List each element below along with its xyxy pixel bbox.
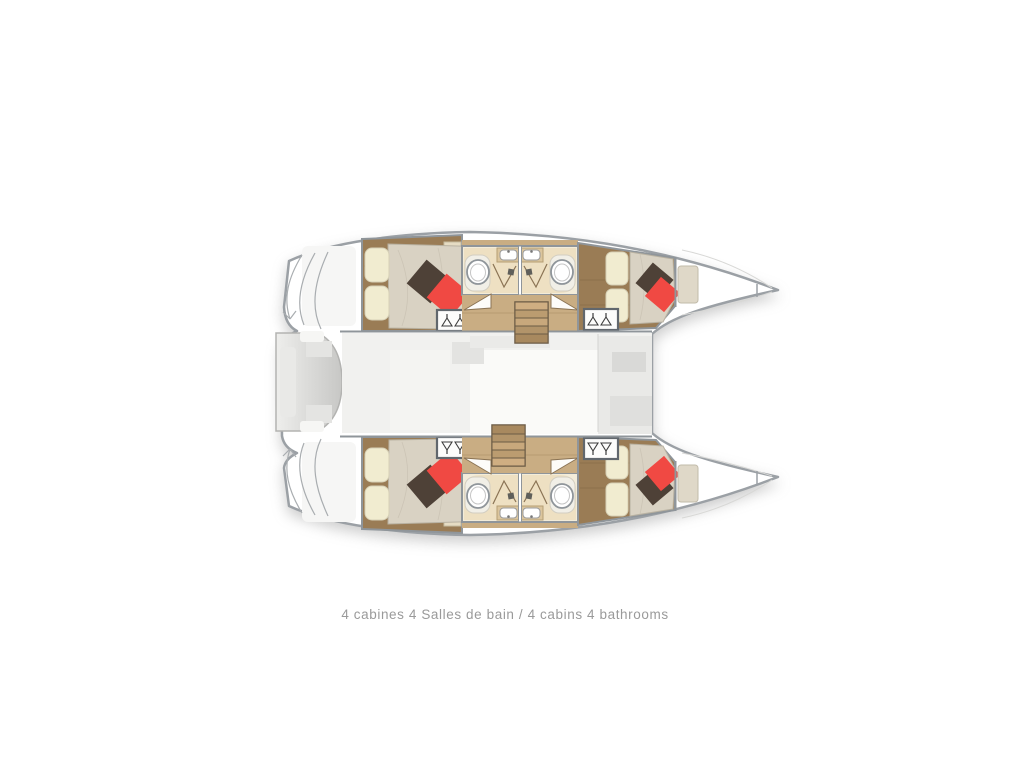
port-stairs <box>515 302 548 343</box>
cockpit-cushion <box>300 331 324 342</box>
catamaran-floor-plan-page: 4 cabines 4 Salles de bain / 4 cabins 4 … <box>0 0 1024 768</box>
cockpit-cushion <box>300 421 324 432</box>
saloon-seat <box>610 396 652 426</box>
caption-text: 4 cabines 4 Salles de bain / 4 cabins 4 … <box>341 607 668 622</box>
cockpit-area <box>276 331 342 432</box>
cockpit-table <box>306 405 332 423</box>
saloon-sofa <box>390 350 450 430</box>
catamaran-deck-plan <box>0 0 1024 768</box>
cockpit-table <box>306 341 332 357</box>
caption: 4 cabines 4 Salles de bain / 4 cabins 4 … <box>0 607 1010 622</box>
cockpit-bench <box>280 347 296 417</box>
saloon-area <box>342 333 652 434</box>
saloon-table <box>470 350 600 434</box>
starboard-stairs <box>492 425 525 466</box>
chart-table <box>612 352 646 372</box>
